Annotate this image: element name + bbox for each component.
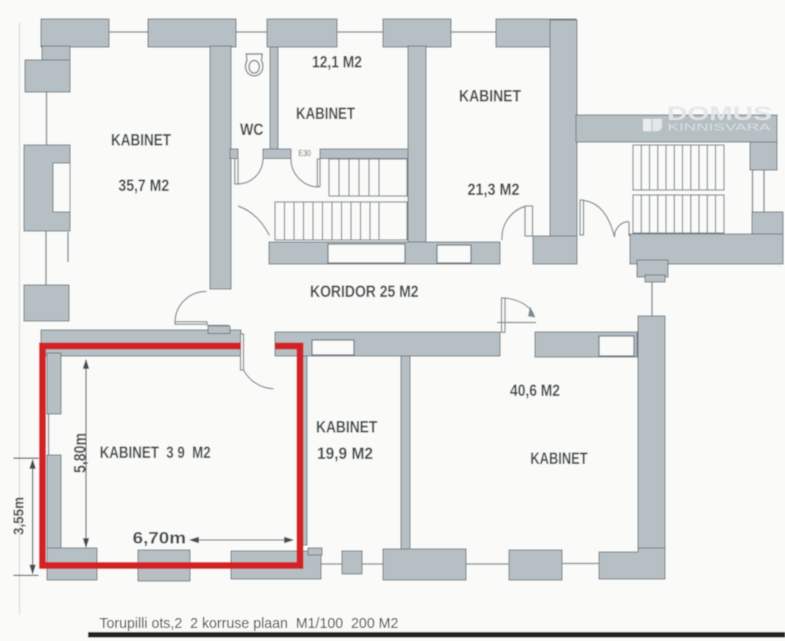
svg-text:6,70m: 6,70m [133,529,186,548]
svg-text:35,7 M2: 35,7 M2 [118,176,169,195]
svg-text:KABINET: KABINET [459,87,521,106]
svg-text:KORIDOR 25 M2: KORIDOR 25 M2 [310,282,419,301]
svg-text:21,3 M2: 21,3 M2 [468,180,520,199]
svg-text:19,9 M2: 19,9 M2 [317,444,373,463]
svg-text:5,80m: 5,80m [71,433,90,473]
svg-text:KABINET: KABINET [530,449,588,468]
svg-text:Torupilli ots,2 2 korruse pla: Torupilli ots,2 2 korruse plaan M1/100 2… [99,615,398,632]
svg-text:KABINET: KABINET [316,418,378,437]
svg-text:KABINET: KABINET [296,104,355,123]
svg-text:KABINET: KABINET [111,131,171,150]
svg-text:KINNISVARA: KINNISVARA [668,122,771,134]
svg-text:KABINET 3 9 M2: KABINET 3 9 M2 [100,443,211,462]
svg-text:WC: WC [240,120,264,139]
svg-text:40,6 M2: 40,6 M2 [510,381,560,400]
svg-text:12,1 M2: 12,1 M2 [312,53,362,72]
svg-text:3,55m: 3,55m [11,497,28,535]
svg-text:E30: E30 [298,149,311,158]
